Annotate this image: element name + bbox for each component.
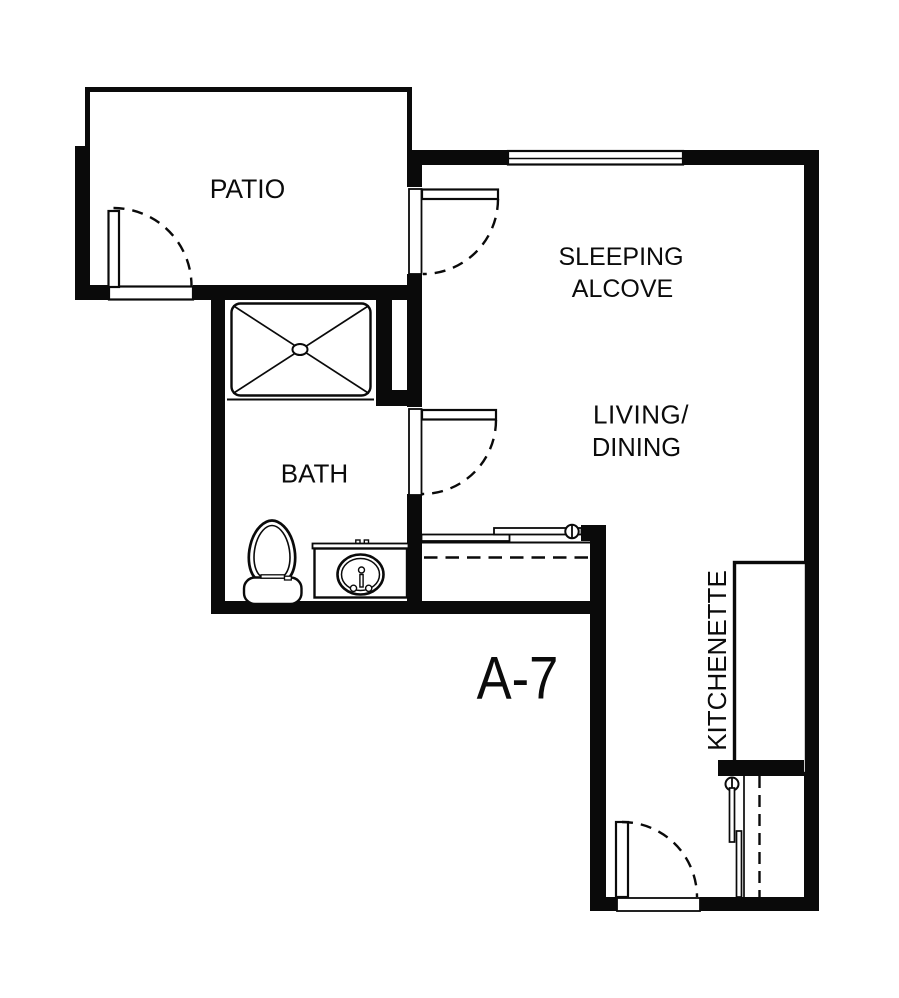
svg-text:LIVING/: LIVING/ [593, 400, 689, 430]
svg-text:PATIO: PATIO [210, 174, 286, 204]
svg-text:KITCHENETTE: KITCHENETTE [702, 570, 732, 751]
svg-text:A-7: A-7 [477, 644, 559, 711]
svg-text:ALCOVE: ALCOVE [572, 275, 673, 303]
svg-text:SLEEPING: SLEEPING [558, 243, 683, 271]
svg-text:BATH: BATH [281, 459, 348, 489]
svg-text:DINING: DINING [592, 434, 681, 462]
